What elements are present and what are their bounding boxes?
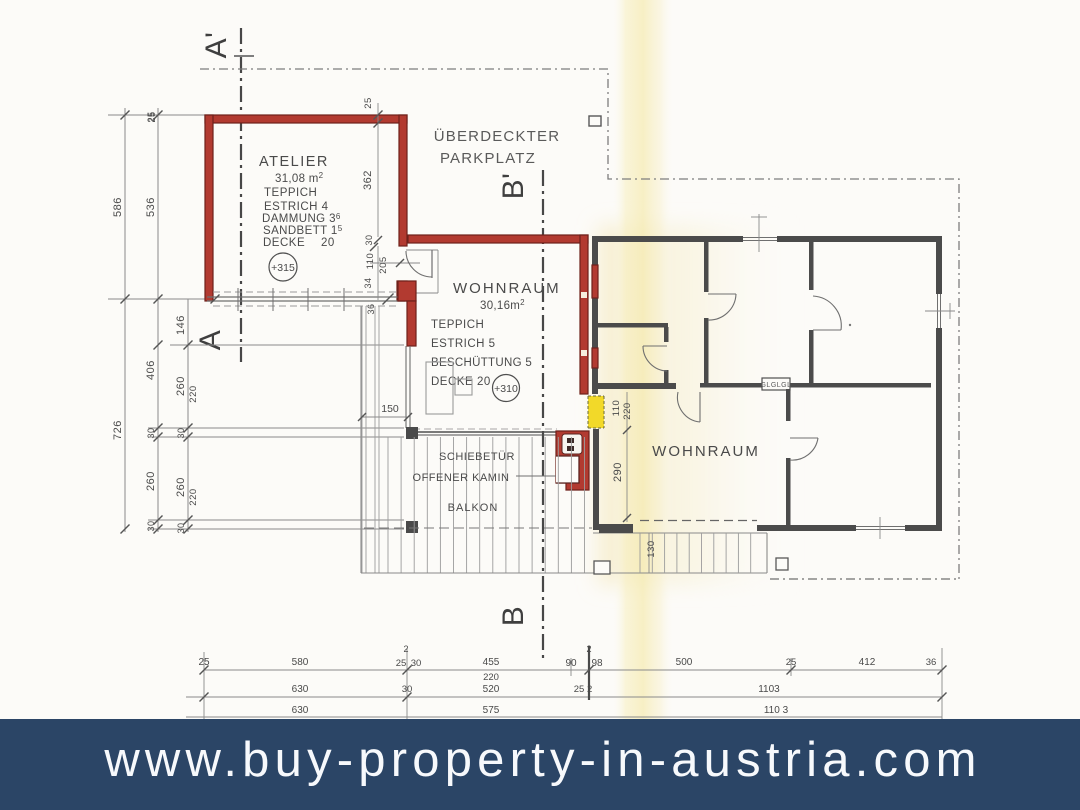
svg-text:31,08 m2: 31,08 m2: [275, 171, 324, 185]
svg-text:B: B: [497, 606, 530, 627]
svg-text:406: 406: [145, 360, 157, 380]
svg-text:536: 536: [145, 197, 157, 217]
svg-text:GLGLGL: GLGLGL: [760, 382, 791, 389]
svg-text:220: 220: [188, 488, 199, 505]
svg-text:SANDBETT 15: SANDBETT 15: [263, 224, 343, 237]
svg-text:260: 260: [145, 471, 157, 491]
svg-text:B': B': [497, 173, 530, 200]
svg-text:98: 98: [591, 658, 603, 669]
svg-text:DECKE: DECKE: [263, 237, 305, 249]
svg-text:+310: +310: [494, 383, 518, 395]
svg-text:455: 455: [483, 657, 500, 668]
svg-text:www.buy-property-in-austria.co: www.buy-property-in-austria.com: [103, 733, 981, 787]
svg-text:520: 520: [483, 684, 500, 695]
svg-text:A: A: [194, 330, 227, 351]
svg-text:36: 36: [926, 657, 937, 668]
svg-text:25: 25: [363, 97, 374, 109]
svg-text:30: 30: [411, 658, 422, 669]
svg-text:90: 90: [565, 658, 577, 669]
svg-text:260: 260: [175, 376, 187, 396]
svg-text:OFFENER KAMIN: OFFENER KAMIN: [413, 472, 510, 484]
svg-text:30,16m2: 30,16m2: [480, 298, 525, 312]
svg-text:DECKE: DECKE: [431, 376, 473, 388]
svg-text:586: 586: [112, 197, 124, 217]
svg-text:2: 2: [403, 644, 408, 654]
svg-text:150: 150: [381, 403, 399, 415]
svg-text:726: 726: [112, 420, 124, 440]
svg-text:36: 36: [366, 303, 376, 314]
svg-text:575: 575: [483, 705, 500, 716]
svg-text:30: 30: [364, 234, 374, 245]
svg-text:25: 25: [198, 657, 210, 668]
svg-text:WOHNRAUM: WOHNRAUM: [652, 443, 760, 460]
svg-text:2: 2: [586, 644, 591, 654]
svg-text:205: 205: [378, 256, 389, 273]
svg-text:1103: 1103: [758, 684, 780, 695]
svg-text:110: 110: [365, 253, 376, 270]
svg-text:ÜBERDECKTER: ÜBERDECKTER: [434, 127, 561, 145]
svg-text:30: 30: [176, 427, 186, 438]
svg-text:SCHIEBETÜR: SCHIEBETÜR: [439, 451, 515, 463]
svg-text:260: 260: [175, 477, 187, 497]
svg-text:25: 25: [147, 111, 157, 122]
svg-text:130: 130: [646, 540, 657, 557]
svg-text:362: 362: [362, 170, 374, 190]
svg-text:A': A': [200, 32, 233, 59]
svg-text:ESTRICH 5: ESTRICH 5: [431, 338, 496, 350]
svg-text:25: 25: [786, 657, 797, 668]
svg-text:25: 25: [396, 658, 407, 669]
svg-text:30: 30: [146, 427, 156, 438]
svg-text:30: 30: [176, 522, 186, 533]
svg-text:+315: +315: [271, 262, 295, 274]
svg-text:25 2: 25 2: [574, 684, 593, 695]
svg-text:30: 30: [146, 520, 156, 531]
svg-text:BALKON: BALKON: [448, 502, 499, 514]
svg-text:TEPPICH: TEPPICH: [431, 319, 484, 331]
svg-text:34: 34: [363, 277, 373, 288]
svg-text:220: 220: [622, 402, 633, 419]
svg-text:630: 630: [292, 705, 309, 716]
svg-text:TEPPICH: TEPPICH: [264, 187, 317, 199]
svg-text:110 3: 110 3: [764, 705, 789, 716]
svg-text:580: 580: [292, 657, 309, 668]
svg-text:412: 412: [859, 657, 876, 668]
svg-text:500: 500: [676, 657, 693, 668]
svg-text:BESCHÜTTUNG 5: BESCHÜTTUNG 5: [431, 357, 532, 369]
svg-text:146: 146: [175, 315, 187, 335]
svg-text:20: 20: [477, 376, 491, 388]
svg-text:PARKPLATZ: PARKPLATZ: [440, 150, 536, 167]
svg-text:110: 110: [611, 400, 622, 417]
svg-text:20: 20: [321, 237, 335, 249]
svg-text:220: 220: [188, 385, 199, 402]
svg-text:ATELIER: ATELIER: [259, 154, 329, 170]
svg-text:290: 290: [612, 462, 624, 482]
svg-text:DAMMUNG 36: DAMMUNG 36: [262, 212, 341, 225]
svg-text:WOHNRAUM: WOHNRAUM: [453, 280, 561, 297]
svg-text:630: 630: [292, 684, 309, 695]
svg-text:30: 30: [402, 684, 413, 695]
svg-text:ESTRICH 4: ESTRICH 4: [264, 201, 329, 213]
svg-text:220: 220: [483, 672, 499, 683]
